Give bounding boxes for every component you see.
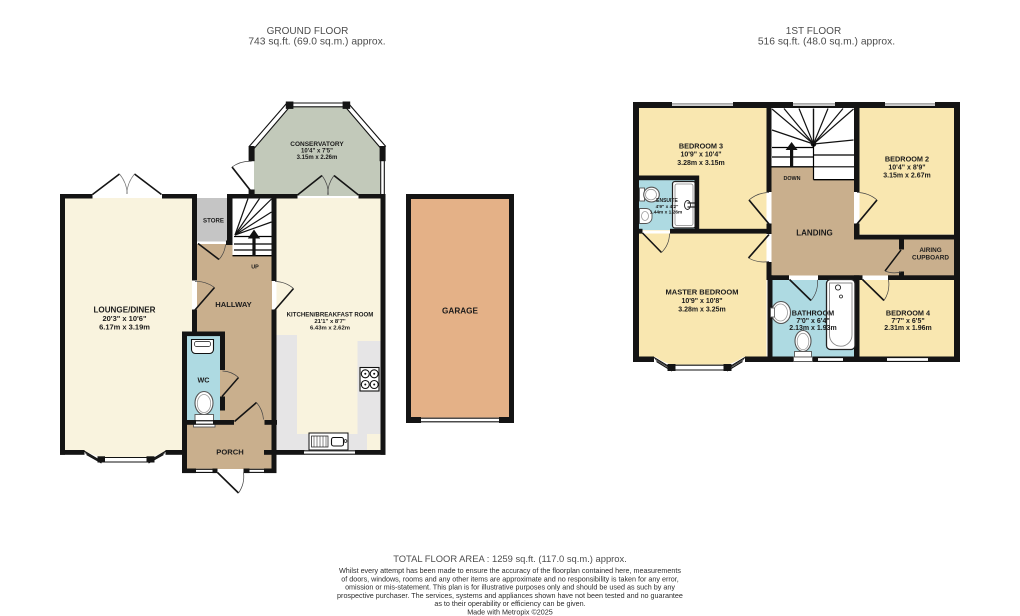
svg-text:LANDING: LANDING bbox=[796, 229, 832, 238]
svg-text:GARAGE: GARAGE bbox=[442, 307, 478, 316]
svg-text:CONSERVATORY: CONSERVATORY bbox=[290, 141, 344, 148]
svg-text:743 sq.ft. (69.0 sq.m.) approx: 743 sq.ft. (69.0 sq.m.) approx. bbox=[248, 37, 385, 48]
svg-text:BEDROOM 2: BEDROOM 2 bbox=[885, 155, 929, 164]
svg-text:PORCH: PORCH bbox=[216, 448, 243, 457]
svg-text:HALLWAY: HALLWAY bbox=[215, 300, 251, 309]
svg-text:BEDROOM 4: BEDROOM 4 bbox=[886, 309, 931, 318]
svg-text:TOTAL FLOOR AREA : 1259 sq.ft.: TOTAL FLOOR AREA : 1259 sq.ft. (117.0 sq… bbox=[393, 553, 627, 564]
svg-text:10'9" x 10'8": 10'9" x 10'8" bbox=[681, 298, 722, 305]
svg-text:GROUND FLOOR: GROUND FLOOR bbox=[267, 26, 349, 37]
svg-text:UP: UP bbox=[251, 265, 259, 271]
svg-text:DOWN: DOWN bbox=[783, 176, 800, 182]
svg-text:BATHROOM: BATHROOM bbox=[792, 309, 834, 318]
svg-text:10'4" x 7'5": 10'4" x 7'5" bbox=[301, 149, 333, 155]
svg-text:2.31m x 1.96m: 2.31m x 1.96m bbox=[884, 325, 931, 332]
svg-text:10'4" x 8'9": 10'4" x 8'9" bbox=[888, 165, 925, 172]
svg-text:AIRING: AIRING bbox=[919, 247, 941, 254]
svg-text:7'0" x 6'4": 7'0" x 6'4" bbox=[796, 318, 829, 325]
svg-text:3.15m x 2.67m: 3.15m x 2.67m bbox=[883, 173, 930, 180]
svg-text:1.44m x 1.26m: 1.44m x 1.26m bbox=[650, 210, 683, 216]
svg-text:516 sq.ft. (48.0 sq.m.) approx: 516 sq.ft. (48.0 sq.m.) approx. bbox=[758, 37, 895, 48]
svg-text:KITCHEN/BREAKFAST ROOM: KITCHEN/BREAKFAST ROOM bbox=[287, 312, 374, 319]
svg-text:STORE: STORE bbox=[203, 218, 224, 225]
svg-text:7'7" x 6'5": 7'7" x 6'5" bbox=[891, 318, 924, 325]
svg-text:6.43m x 2.62m: 6.43m x 2.62m bbox=[310, 326, 350, 332]
svg-text:BEDROOM 3: BEDROOM 3 bbox=[679, 142, 723, 151]
svg-text:WC: WC bbox=[198, 376, 210, 385]
svg-text:3.28m x 3.15m: 3.28m x 3.15m bbox=[677, 160, 724, 167]
svg-text:3.28m x 3.25m: 3.28m x 3.25m bbox=[678, 307, 725, 314]
svg-text:Made with Metropix ©2025: Made with Metropix ©2025 bbox=[467, 608, 553, 616]
svg-text:2.13m x 1.93m: 2.13m x 1.93m bbox=[789, 325, 836, 332]
svg-text:10'9" x 10'4": 10'9" x 10'4" bbox=[680, 152, 721, 159]
svg-text:21'1" x 8'7": 21'1" x 8'7" bbox=[314, 319, 346, 325]
svg-text:ENSUITE: ENSUITE bbox=[656, 198, 678, 204]
svg-text:CUPBOARD: CUPBOARD bbox=[912, 255, 949, 262]
svg-text:3.15m x 2.26m: 3.15m x 2.26m bbox=[297, 155, 338, 161]
svg-text:1ST FLOOR: 1ST FLOOR bbox=[786, 26, 841, 37]
svg-text:4'9" x 4'2": 4'9" x 4'2" bbox=[656, 204, 679, 210]
svg-text:MASTER BEDROOM: MASTER BEDROOM bbox=[666, 288, 739, 297]
svg-text:6.17m x 3.19m: 6.17m x 3.19m bbox=[99, 323, 150, 332]
